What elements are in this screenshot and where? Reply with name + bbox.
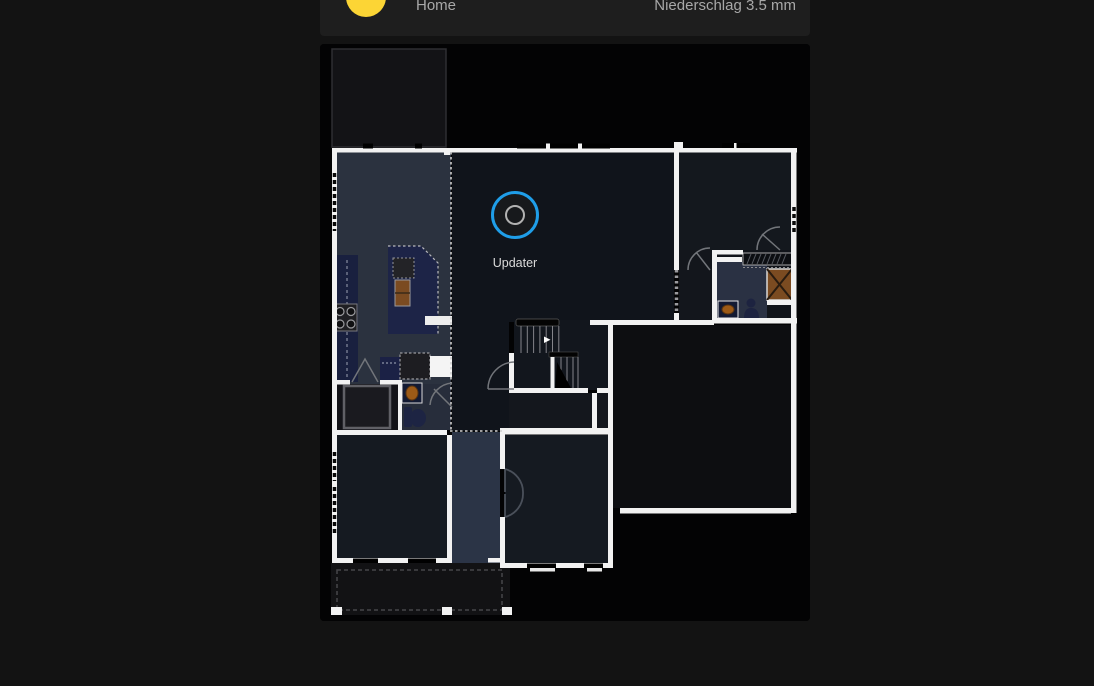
cooktop (393, 258, 414, 278)
updater-label: Updater (465, 256, 565, 270)
hallway (452, 432, 500, 570)
sink (406, 386, 418, 400)
sun-icon[interactable] (346, 0, 386, 17)
bedroom-corridor (679, 250, 712, 322)
floorplan-card: Updater (320, 44, 810, 621)
person-figure (747, 299, 756, 308)
weather-status[interactable]: Niederschlag 3.5 mm (654, 0, 796, 13)
shower-tray (344, 386, 390, 428)
bathroom-sink (722, 305, 734, 314)
garage-top-block (332, 49, 446, 147)
room-living (452, 152, 674, 322)
porch (331, 563, 510, 615)
page: Home Niederschlag 3.5 mm (0, 0, 1094, 686)
updater-badge[interactable] (491, 191, 539, 239)
floor-plan (320, 44, 810, 621)
header-card: Home Niederschlag 3.5 mm (320, 0, 810, 36)
room-dining (337, 435, 447, 558)
handrail (516, 319, 559, 326)
appliance (400, 353, 430, 379)
room-garage (613, 325, 791, 508)
kitchen-furniture (333, 246, 452, 382)
counter-white (425, 316, 452, 325)
room-family (505, 435, 608, 563)
update-icon (505, 205, 525, 225)
room-bedroom (679, 152, 791, 250)
stove-burner (336, 308, 344, 316)
page-title: Home (416, 0, 456, 13)
